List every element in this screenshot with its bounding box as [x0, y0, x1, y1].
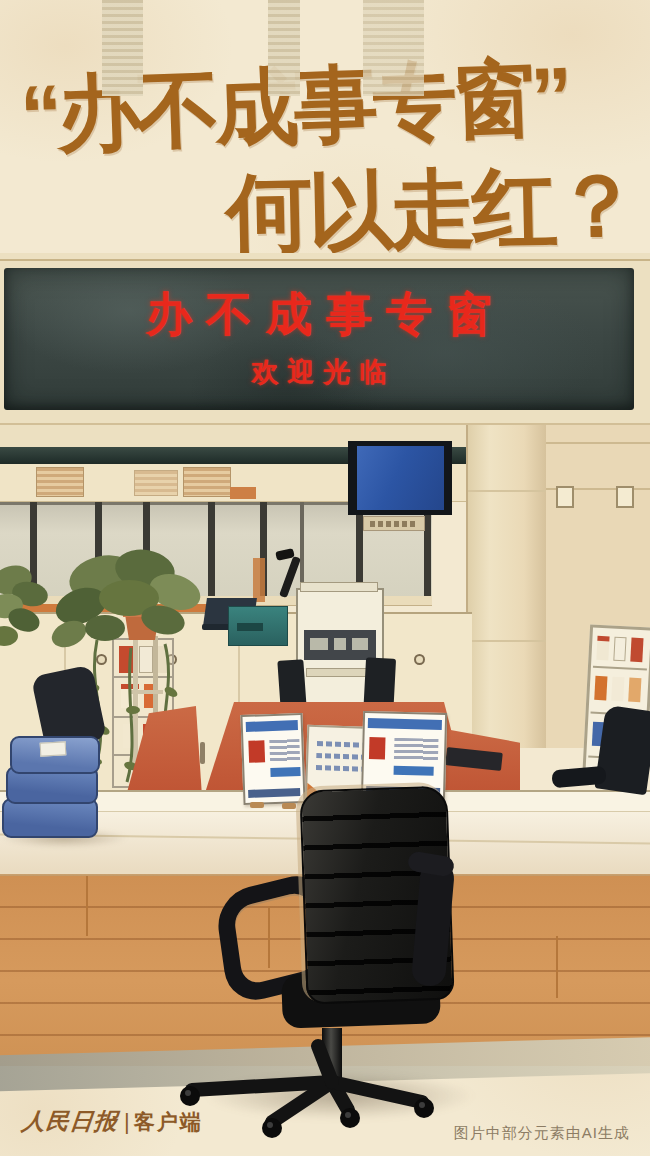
printer-button [334, 638, 346, 650]
cash-box [228, 606, 288, 646]
air-vent [230, 487, 256, 499]
client-label: 客户端 [134, 1108, 203, 1136]
floor-plank-seam [556, 936, 558, 998]
chair-base-legs [192, 1046, 422, 1122]
blue-banner [357, 446, 444, 510]
window-blind-pane [268, 0, 300, 96]
door-frame-post [253, 558, 265, 602]
led-sign-board: 办不成事专窗 欢迎光临 [4, 268, 634, 410]
card-header-bar [246, 720, 298, 732]
logo-divider: | [124, 1109, 130, 1135]
blue-book [2, 798, 98, 838]
rack-shelf [593, 666, 647, 671]
info-card-left [240, 713, 305, 805]
document-card [630, 638, 643, 663]
printer-display [310, 638, 328, 650]
document-card [594, 676, 607, 701]
wall-seam [546, 442, 650, 444]
floor-plank-seam [86, 876, 88, 936]
document-card [596, 636, 609, 661]
book-label [40, 741, 67, 756]
card-blue-button [270, 767, 300, 777]
brand-calligraphy: 人民日报 [20, 1106, 119, 1137]
column-seam [468, 640, 546, 642]
air-vent [134, 470, 178, 496]
column-seam [468, 490, 546, 492]
news-poster: “办不成事专窗” 何以走红？ 办不成事专窗 欢迎光临 [0, 0, 650, 1156]
card-footer-bar [248, 788, 300, 798]
printer-lid [300, 582, 378, 592]
led-sign-text-sub: 欢迎光临 [4, 354, 634, 390]
card-blue-button [394, 766, 434, 776]
sign-frame: 办不成事专窗 欢迎光临 [0, 253, 650, 447]
wall-plate [556, 486, 574, 508]
sign-frame-top-line [0, 259, 650, 261]
wall-plate [616, 486, 634, 508]
pillar-column [466, 425, 546, 748]
ai-generated-note: 图片中部分元素由AI生成 [454, 1124, 630, 1143]
window-blind-pane [363, 0, 424, 96]
cabinet-knob [414, 654, 425, 665]
printer-control-panel [304, 630, 376, 660]
printer-button [352, 638, 368, 650]
plaque-text-marks [370, 521, 418, 527]
document-card [611, 677, 624, 702]
red-seal-icon [248, 740, 265, 763]
wall-tv-screen [348, 441, 452, 515]
window-blind-pane [102, 0, 143, 96]
document-card [613, 637, 626, 662]
card-text-lines [394, 738, 439, 761]
tv-caption-plaque [363, 516, 425, 531]
plant-stand-leg [133, 636, 138, 770]
cash-box-panel [237, 623, 263, 631]
led-sign-text-main: 办不成事专窗 [4, 284, 634, 346]
window-mullion [424, 502, 431, 598]
card-stand-foot [250, 802, 264, 808]
plant-foliage [48, 545, 205, 652]
document-card [628, 678, 641, 703]
air-vent [36, 467, 84, 497]
card-stand-foot [282, 803, 296, 809]
air-vent [183, 467, 231, 497]
printer-paper-tray [306, 668, 374, 677]
card-header-bar [368, 718, 442, 730]
red-seal-icon [369, 737, 386, 759]
card-text-lines [269, 739, 300, 762]
chair-base [180, 1030, 470, 1140]
people-daily-logo: 人民日报 | 客户端 [22, 1106, 203, 1137]
